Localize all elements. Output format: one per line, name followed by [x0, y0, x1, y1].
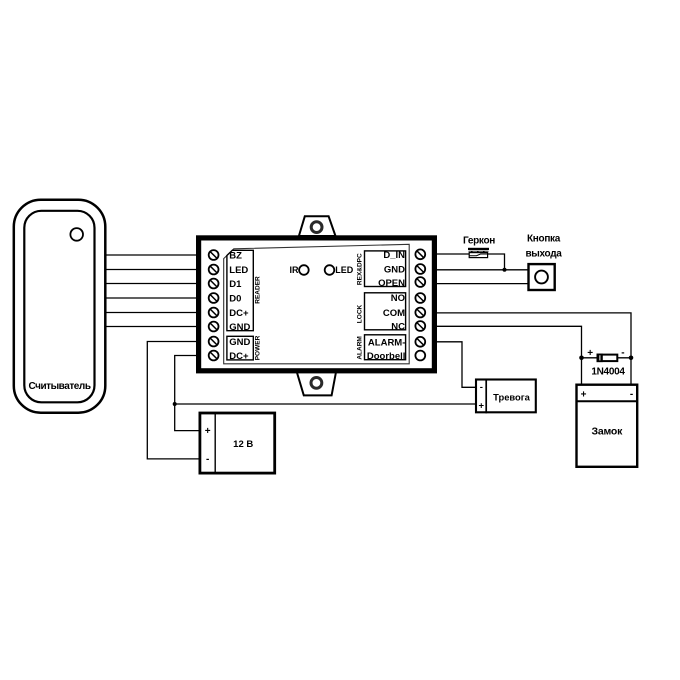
svg-text:LED: LED: [229, 265, 248, 276]
svg-text:+: +: [205, 426, 211, 437]
svg-text:+: +: [479, 401, 485, 412]
svg-text:12 В: 12 В: [233, 439, 253, 450]
svg-text:POWER: POWER: [255, 335, 262, 360]
svg-text:ALARM-: ALARM-: [368, 337, 405, 348]
svg-text:COM: COM: [383, 308, 405, 319]
svg-text:GND: GND: [384, 264, 405, 275]
svg-text:Кнопка: Кнопка: [527, 234, 561, 245]
svg-text:BZ: BZ: [229, 250, 242, 261]
svg-text:Тревога: Тревога: [493, 391, 531, 402]
svg-text:Doorbell: Doorbell: [367, 351, 406, 362]
svg-text:-: -: [206, 454, 209, 465]
svg-text:REX&DPC: REX&DPC: [356, 253, 363, 285]
svg-text:DC+: DC+: [229, 308, 249, 319]
svg-text:READER: READER: [255, 276, 262, 304]
svg-text:+: +: [587, 348, 593, 359]
svg-text:Геркон: Геркон: [463, 236, 495, 247]
svg-text:GND: GND: [229, 337, 250, 348]
svg-text:LOCK: LOCK: [356, 304, 363, 323]
svg-text:OPEN: OPEN: [378, 278, 405, 289]
svg-text:-: -: [630, 389, 633, 400]
svg-text:D_IN: D_IN: [383, 250, 405, 261]
svg-text:GND: GND: [229, 322, 250, 333]
svg-text:Считыватель: Считыватель: [28, 381, 90, 392]
svg-text:DC+: DC+: [229, 351, 249, 362]
svg-text:IR: IR: [290, 265, 300, 275]
svg-text:D0: D0: [229, 293, 241, 304]
svg-text:ALARM: ALARM: [356, 336, 363, 359]
svg-text:-: -: [480, 382, 483, 393]
svg-text:NO: NO: [391, 293, 405, 304]
svg-text:NC: NC: [391, 321, 405, 332]
svg-text:D1: D1: [229, 279, 242, 290]
svg-text:-: -: [621, 347, 624, 358]
svg-text:LED: LED: [335, 265, 354, 275]
svg-text:выхода: выхода: [525, 249, 562, 260]
svg-text:+: +: [581, 390, 587, 401]
svg-text:Замок: Замок: [591, 426, 623, 438]
svg-text:1N4004: 1N4004: [591, 367, 625, 378]
